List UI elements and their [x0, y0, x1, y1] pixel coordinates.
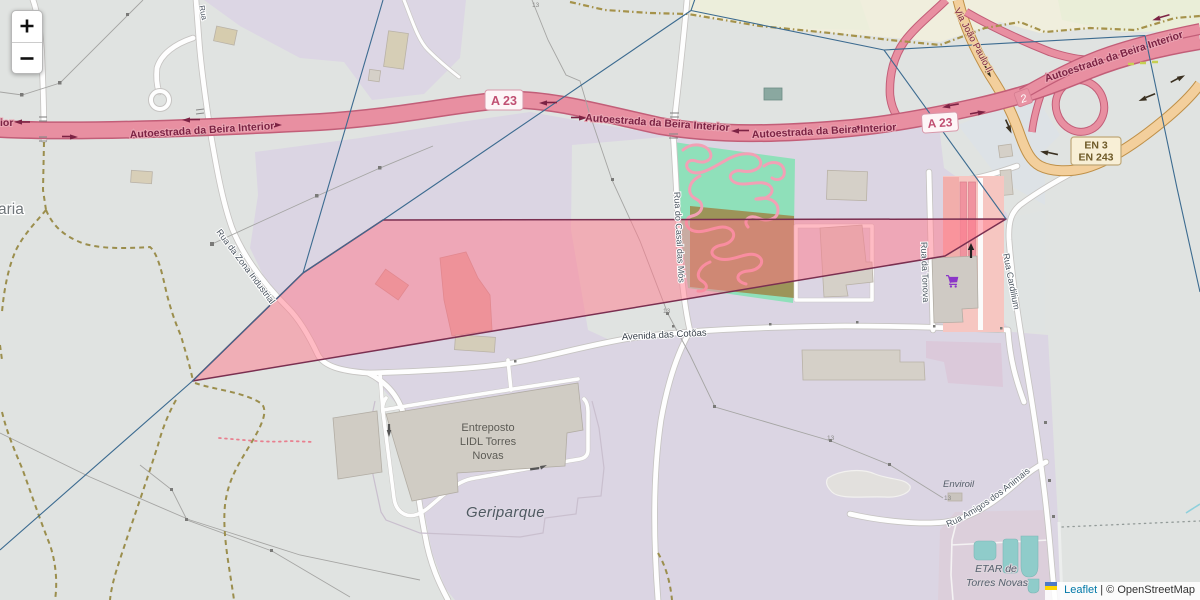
svg-text:A 23: A 23 [491, 94, 517, 108]
svg-text:13: 13 [944, 495, 952, 502]
svg-text:Geriparque: Geriparque [466, 504, 545, 521]
svg-text:LIDL Torres: LIDL Torres [460, 436, 517, 448]
svg-text:Rua da Tonova: Rua da Tonova [919, 242, 931, 303]
svg-text:aria: aria [0, 201, 24, 218]
svg-text:Torres Novas: Torres Novas [966, 577, 1029, 589]
svg-text:EN 3: EN 3 [1084, 140, 1108, 152]
svg-text:13: 13 [827, 435, 835, 442]
svg-text:Entreposto: Entreposto [461, 422, 514, 434]
svg-text:ior: ior [0, 117, 13, 129]
svg-text:Enviroil: Enviroil [943, 479, 975, 490]
svg-text:A 23: A 23 [927, 115, 953, 131]
svg-text:13: 13 [663, 308, 671, 315]
svg-text:EN 243: EN 243 [1078, 152, 1113, 164]
svg-text:ETAR de: ETAR de [975, 563, 1017, 575]
svg-text:13: 13 [532, 2, 540, 9]
svg-text:Novas: Novas [472, 450, 504, 462]
